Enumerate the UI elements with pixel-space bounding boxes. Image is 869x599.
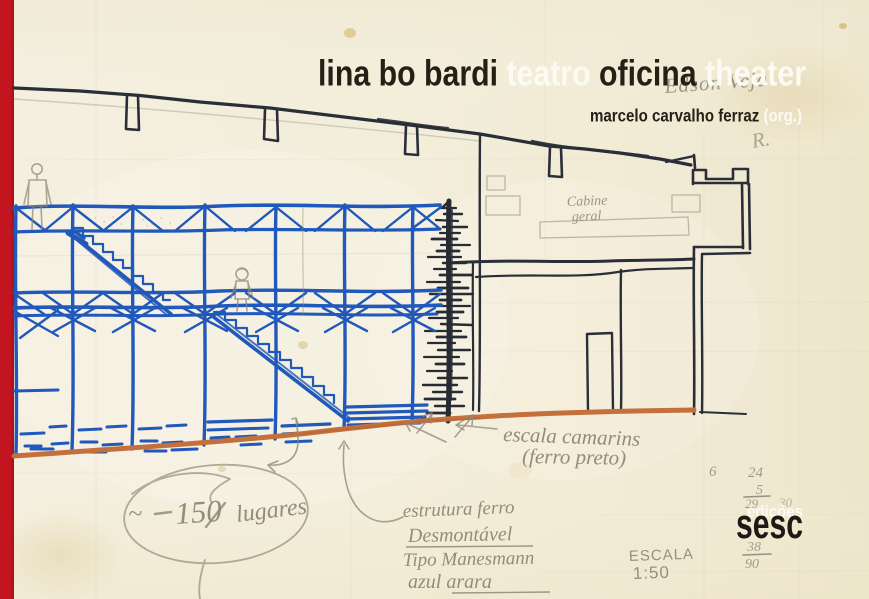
svg-text:estrutura ferro: estrutura ferro bbox=[402, 497, 514, 522]
svg-text:Cabine: Cabine bbox=[567, 194, 608, 210]
svg-text:150: 150 bbox=[174, 493, 223, 531]
svg-text:Desmontável: Desmontável bbox=[407, 523, 513, 547]
svg-text:6: 6 bbox=[709, 464, 717, 480]
svg-text:(ferro preto): (ferro preto) bbox=[522, 444, 626, 470]
svg-text:~: ~ bbox=[128, 499, 142, 528]
svg-text:lina bo bardi teatro oficina t: lina bo bardi teatro oficina theater bbox=[318, 53, 806, 94]
svg-text:90: 90 bbox=[745, 557, 759, 572]
svg-text:marcelo carvalho ferraz (org.): marcelo carvalho ferraz (org.) bbox=[590, 106, 802, 126]
svg-text:sesc: sesc bbox=[736, 500, 803, 547]
svg-text:1:50: 1:50 bbox=[632, 563, 670, 583]
svg-text:24: 24 bbox=[748, 465, 764, 481]
svg-text:azul arara: azul arara bbox=[408, 571, 492, 593]
svg-text:geral: geral bbox=[572, 209, 602, 225]
svg-text:Tipo Manesmann: Tipo Manesmann bbox=[403, 548, 535, 571]
